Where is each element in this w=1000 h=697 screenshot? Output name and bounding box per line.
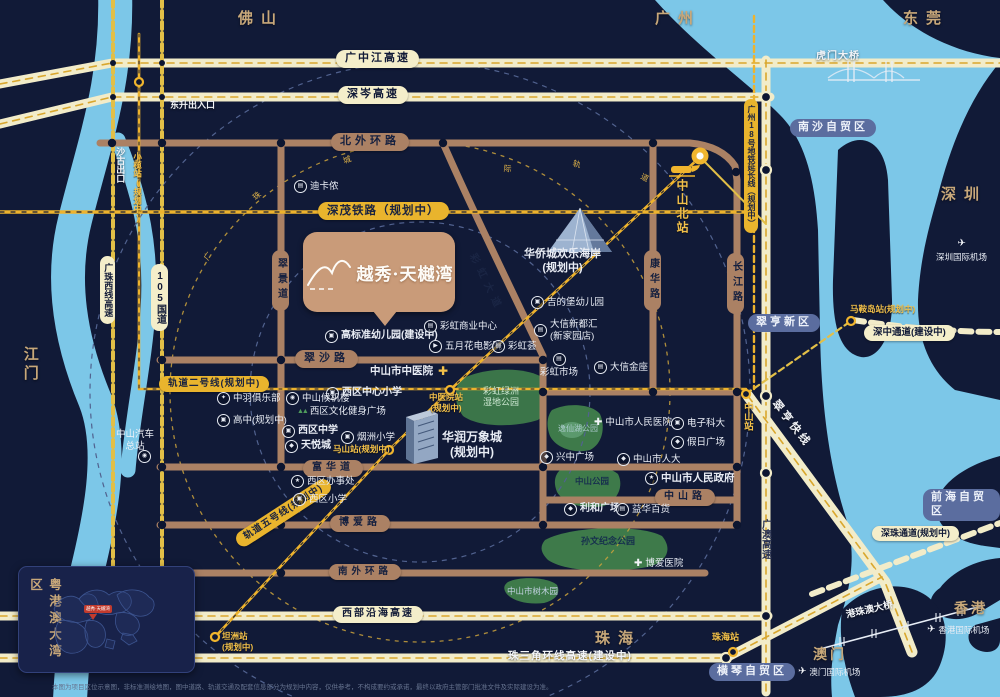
park-sunwen: 孙文纪念公园	[581, 536, 635, 547]
poi-macau-airport-label: 澳门国际机场	[809, 667, 860, 678]
poi-city-government: ★中山市人民政府	[645, 472, 735, 485]
expwy-cuihengkuaixian: 翠亨快线	[768, 398, 813, 451]
city-jiangmen: 江门	[20, 346, 39, 384]
expwy-zhusanjiao: 珠三角环线高速(建设中)	[508, 650, 632, 663]
road-cuisha: 翠沙路	[295, 350, 358, 368]
station-maandao: 马鞍岛站(规划中)	[850, 304, 915, 315]
road-beiwaihuan: 北外环路	[331, 133, 409, 151]
rail-guangzhu-char6: 道	[639, 172, 651, 184]
cross-icon: ✚	[594, 417, 602, 430]
poi-jidibao-kindergarten: ▣吉的堡幼儿园	[531, 296, 604, 309]
metro-line2: 轨道二号线(规划中)	[159, 376, 269, 392]
station-mashan: 马山站(规划中)	[333, 444, 390, 455]
park-zhongshan: 中山公园	[575, 476, 609, 487]
poi-zhongshan-airport-terminal: ◉中山候机楼	[286, 392, 350, 405]
road-changjianglu: 长江路	[727, 253, 744, 314]
road-nanwaihuan: 南外环路	[329, 564, 401, 580]
map-root: 越秀·天樾湾 粤港澳大湾区 肇庆佛山广州东莞惠州深圳香港珠海澳门江门 越秀·天樾…	[0, 0, 1000, 697]
poi-shenzhen-airport: ✈深圳国际机场	[936, 238, 987, 262]
expwy-guangzhuxixian: 广珠西线高速	[100, 256, 115, 324]
poi-xiqu-culture-square: ▲▲西区文化健身广场	[297, 406, 386, 418]
hills-icon: ▲▲	[297, 408, 307, 417]
rail-guangzhu-char5: 轨	[572, 159, 582, 171]
poi-xiqu-primary: ▣西区小学	[293, 493, 347, 506]
city-macau: 澳门	[813, 646, 847, 664]
poi-caihong-market: ▤彩虹市场	[540, 353, 578, 379]
rail-shenmao: 深茂铁路（规划中）	[318, 202, 449, 220]
poi-boai-hospital: ✚博爱医院	[634, 558, 683, 571]
city-foshan: 佛山	[238, 10, 284, 29]
bag-icon: ◆	[564, 503, 577, 516]
zone-hengqin: 横琴自贸区	[709, 663, 795, 681]
station-tanzhou: 坦洲站 (规划中)	[222, 631, 253, 652]
poi-daxin-xindouhui: ▤大信新都汇 (新家园店)	[534, 319, 598, 343]
park-caihonglvzhou: 彩虹绿洲 湿地公园	[483, 386, 519, 409]
rail-guangzhu-char1: 广	[202, 250, 215, 262]
road-cuijingdao: 翠景道	[272, 250, 289, 311]
poi-zhongyu-club-label: 中羽俱乐部	[233, 393, 281, 405]
shop-icon: ▤	[553, 353, 566, 366]
shuttle-icon: ✦	[217, 392, 230, 405]
exit-dongsheng: 东升出入口	[170, 100, 215, 111]
poi-mixc-mall-label: 华润万象城 (规划中)	[442, 430, 502, 460]
poi-yanzhou-primary: ▣烟洲小学	[341, 431, 395, 444]
expwy-guangao: 广澳高速	[758, 519, 771, 559]
poi-decathlon-label: 迪卡侬	[310, 181, 339, 193]
poi-oct-happy-coast: 华侨城欢乐海岸 (规划中)	[524, 248, 601, 276]
bag-icon: ◆	[617, 453, 630, 466]
bus-icon: ◉	[286, 392, 299, 405]
park-shumuyuan: 中山市树木园	[507, 586, 558, 597]
poi-holiday-plaza: ◆假日广场	[671, 436, 725, 449]
poi-holiday-plaza-label: 假日广场	[687, 437, 725, 449]
city-zhuhai: 珠海	[595, 630, 641, 649]
school-icon: ▣	[293, 493, 306, 506]
poi-xiqu-culture-square-label: 西区文化健身广场	[310, 406, 386, 418]
poi-xiqu-office: ★西区办事处	[291, 475, 355, 488]
exit-shagu: 沙古出口	[114, 147, 125, 183]
rail-guangzhu-char3: 城	[342, 155, 353, 167]
station-zhongyiyuan: 中医院站 (规划中)	[429, 392, 463, 413]
poi-hongkong-airport-label: 香港国际机场	[938, 625, 989, 636]
bag-icon: ◆	[285, 440, 298, 453]
city-shenzhen: 深圳	[941, 186, 987, 205]
zone-cuiheng: 翠亨新区	[748, 314, 820, 332]
poi-caihonghui-label: 彩虹荟	[508, 341, 537, 353]
city-dongguan: 东莞	[903, 10, 949, 29]
station-xiaolan: 小榄站(规划中)	[132, 152, 143, 223]
poi-jidibao-kindergarten-label: 吉的堡幼儿园	[547, 297, 604, 309]
poi-tianyuecheng: ◆天悦城	[285, 440, 331, 453]
hospital-cross-icon: ✚	[438, 364, 448, 379]
film-icon: ▶	[429, 340, 442, 353]
city-hongkong: 香港	[954, 600, 988, 618]
poi-boai-hospital-label: 博爱医院	[645, 558, 683, 570]
shop-icon: ▤	[594, 361, 607, 374]
poi-mixc-mall: 华润万象城 (规划中)	[442, 430, 502, 460]
poi-caihong-shangye: ▤彩虹商业中心	[424, 320, 497, 333]
poi-uestc: ▣电子科大	[671, 417, 725, 430]
poi-yihua-dept: ▤益华百货	[616, 503, 670, 516]
star-icon: ★	[645, 472, 658, 485]
poi-hongkong-airport: ✈香港国际机场	[927, 624, 989, 637]
zone-nansha: 南沙自贸区	[790, 119, 876, 137]
shop-icon: ▤	[424, 320, 437, 333]
poi-zhongshan-tcm-hospital-label: 中山市中医院	[370, 365, 433, 378]
map-labels-layer: 佛山广州东莞深圳江门珠海香港澳门南沙自贸区翠亨新区前海自贸区横琴自贸区广中江高速…	[0, 0, 1000, 697]
city-guangzhou: 广州	[655, 10, 701, 29]
bag-icon: ◆	[540, 451, 553, 464]
poi-caihong-market-label: 彩虹市场	[540, 367, 578, 379]
poi-bus-terminal-icon: ◉	[138, 450, 154, 463]
metro-gz18: 广州18号地铁延长线（规划中）	[744, 99, 758, 233]
poi-daxin-jinzuo: ▤大信金座	[594, 361, 648, 374]
park-yixianhu: 逸仙湖公园	[558, 424, 598, 434]
bus-icon: ◉	[138, 450, 151, 463]
poi-xiqu-primary-label: 西区小学	[309, 494, 347, 506]
shop-icon: ▤	[616, 503, 629, 516]
expwy-guangzhongjiang: 广中江高速	[336, 50, 419, 68]
poi-highschool-planned: ▣高中(规划中)	[217, 414, 287, 427]
poi-zhongshan-airport-terminal-label: 中山候机楼	[302, 393, 350, 405]
bridge-hzmb-label: 港珠澳大桥	[845, 599, 894, 621]
shop-icon: ▤	[534, 324, 547, 337]
school-icon: ▣	[341, 431, 354, 444]
poi-shenzhen-airport-label: 深圳国际机场	[936, 252, 987, 263]
poi-caihonghui: ▤彩虹荟	[492, 340, 537, 353]
poi-city-government-label: 中山市人民政府	[661, 472, 735, 485]
poi-highschool-planned-label: 高中(规划中)	[233, 415, 287, 427]
rail-guangzhu-char2: 珠	[251, 190, 264, 203]
poi-peoples-hospital-label: 中山市人民医院	[605, 417, 672, 429]
school-icon: ▣	[217, 414, 230, 427]
plane-icon: ✈	[957, 238, 965, 251]
expwy-shenzhu-tunnel: 深珠通道(规划中)	[872, 526, 959, 541]
school-icon: ▣	[531, 296, 544, 309]
station-zhongshan: 中山站	[741, 402, 753, 431]
star-icon: ★	[291, 475, 304, 488]
plane-icon: ✈	[927, 624, 935, 637]
road-boai: 博爱路	[330, 515, 390, 532]
poi-lihe-plaza-label: 利和广场	[580, 503, 620, 516]
poi-xiqu-middle-school: ▣西区中学	[282, 425, 338, 438]
rail-guangzhu-char4: 际	[503, 164, 512, 175]
bridge-humen-label: 虎门大桥	[816, 51, 860, 64]
poi-xiqu-office-label: 西区办事处	[307, 476, 355, 488]
poi-tianyuecheng-label: 天悦城	[301, 440, 331, 453]
school-icon: ▣	[671, 417, 684, 430]
poi-yanzhou-primary-label: 烟洲小学	[357, 432, 395, 444]
station-zhuhai: 珠海站	[712, 632, 739, 643]
expwy-xibuyanhai: 西部沿海高速	[333, 606, 423, 623]
road-g105: 105国道	[151, 264, 168, 331]
poi-renda-label: 中山市人大	[633, 454, 681, 466]
poi-daxin-xindouhui-label: 大信新都汇 (新家园店)	[550, 319, 598, 343]
poi-yihua-dept-label: 益华百货	[632, 504, 670, 516]
road-caihongdadao: 彩虹大道	[466, 252, 505, 315]
poi-oct-happy-coast-label: 华侨城欢乐海岸 (规划中)	[524, 248, 601, 276]
bag-icon: ◆	[671, 436, 684, 449]
station-zhongshanbei: 中山北站	[674, 179, 689, 235]
poi-caihong-shangye-label: 彩虹商业中心	[440, 321, 497, 333]
poi-xingzhong-plaza: ◆兴中广场	[540, 451, 594, 464]
poi-xingzhong-plaza-label: 兴中广场	[556, 452, 594, 464]
school-icon: ▣	[325, 330, 338, 343]
poi-peoples-hospital: ✚中山市人民医院	[594, 417, 672, 430]
poi-daxin-jinzuo-label: 大信金座	[610, 362, 648, 374]
poi-renda: ◆中山市人大	[617, 453, 681, 466]
poi-decathlon: ▤迪卡侬	[294, 180, 339, 193]
cross-icon: ✚	[634, 558, 642, 571]
shop-icon: ▤	[492, 340, 505, 353]
poi-xiqu-middle-school-label: 西区中学	[298, 425, 338, 438]
plane-icon: ✈	[798, 666, 806, 679]
poi-lihe-plaza: ◆利和广场	[564, 503, 620, 516]
road-kanghualu: 康华路	[644, 250, 661, 311]
poi-macau-airport: ✈澳门国际机场	[798, 666, 860, 679]
poi-kindergarten-gaobiaozhun: ▣高标准幼儿园(建设中)	[325, 330, 438, 343]
shop-icon: ▤	[294, 180, 307, 193]
expwy-shencen: 深岑高速	[338, 86, 408, 104]
poi-uestc-label: 电子科大	[687, 418, 725, 430]
zone-qianhai: 前海自贸区	[923, 489, 1000, 521]
poi-zhongyu-club: ✦中羽俱乐部	[217, 392, 281, 405]
poi-xiqu-central-primary-label: 西区中心小学	[342, 387, 402, 400]
expwy-shenzhong-tunnel: 深中通道(建设中)	[864, 325, 955, 341]
poi-zhongshan-tcm-hospital: 中山市中医院✚	[370, 364, 448, 379]
